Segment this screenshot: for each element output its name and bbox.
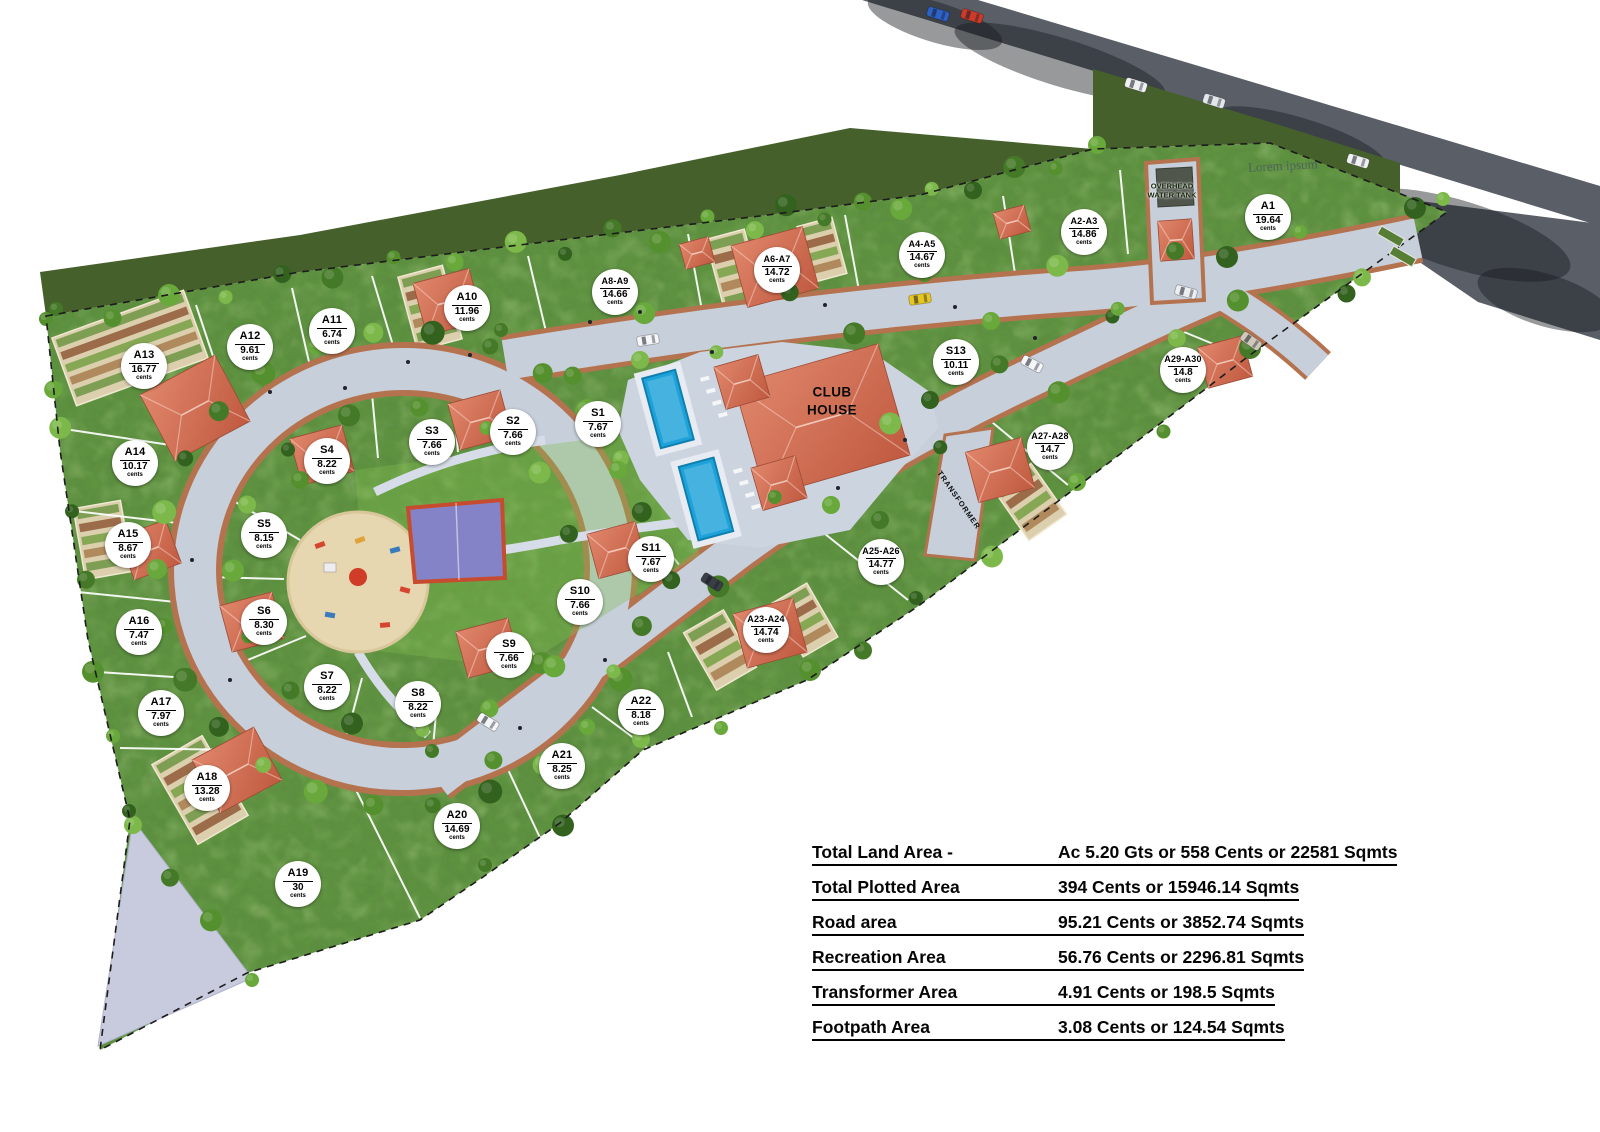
legend-label: Recreation Area — [812, 947, 1058, 968]
plot-id: A19 — [288, 868, 309, 879]
plot-area-value: 8.22 — [317, 686, 336, 696]
plot-area-unit: cents — [501, 664, 517, 671]
plot-marker-a2-a3: A2-A314.86cents — [1061, 209, 1107, 255]
plot-marker-s11: S117.67cents — [628, 536, 674, 582]
plot-area-value: 7.67 — [641, 558, 660, 568]
plot-marker-s9: S97.66cents — [486, 632, 532, 678]
plot-area-unit: cents — [410, 713, 426, 720]
plot-area-value: 10.11 — [944, 361, 968, 371]
plot-area-unit: cents — [873, 570, 889, 577]
plot-marker-s6: S68.30cents — [241, 599, 287, 645]
plot-area-value: 14.7 — [1040, 445, 1059, 455]
overhead-water-tank-label: OVERHEAD WATER TANK — [1148, 182, 1197, 201]
plot-marker-a18: A1813.28cents — [184, 765, 230, 811]
plot-area-value: 6.74 — [322, 330, 341, 340]
plot-area-unit: cents — [590, 433, 606, 440]
plot-marker-a20: A2014.69cents — [434, 803, 480, 849]
plot-marker-a22: A228.18cents — [618, 689, 664, 735]
plot-area-unit: cents — [324, 340, 340, 347]
plot-marker-a19: A1930cents — [275, 861, 321, 907]
legend-value: Ac 5.20 Gts or 558 Cents or 22581 Sqmts — [1058, 842, 1397, 863]
plot-id: S4 — [320, 445, 334, 456]
plot-area-value: 14.8 — [1173, 368, 1192, 378]
area-legend: Total Land Area -Ac 5.20 Gts or 558 Cent… — [812, 842, 1397, 1052]
plot-id: S11 — [641, 543, 661, 554]
plot-id: A16 — [129, 616, 150, 627]
plot-area-unit: cents — [633, 721, 649, 728]
plot-id: S8 — [411, 688, 425, 699]
plot-area-unit: cents — [572, 611, 588, 618]
plot-area-value: 14.67 — [909, 253, 934, 263]
legend-row: Footpath Area3.08 Cents or 124.54 Sqmts — [812, 1017, 1285, 1041]
site-plan-map: CLUB HOUSE OVERHEAD WATER TANK TRANSFORM… — [0, 0, 1600, 1132]
plot-marker-s8: S88.22cents — [395, 681, 441, 727]
plot-marker-a13: A1316.77cents — [121, 343, 167, 389]
plot-id: S2 — [506, 416, 520, 427]
legend-value: 3.08 Cents or 124.54 Sqmts — [1058, 1017, 1285, 1038]
plot-id: A1 — [1261, 201, 1275, 212]
plot-area-value: 30 — [292, 883, 303, 893]
plot-marker-a16: A167.47cents — [116, 609, 162, 655]
plot-area-unit: cents — [199, 797, 215, 804]
plot-id: A8-A9 — [601, 277, 628, 286]
club-house-label: CLUB HOUSE — [807, 383, 857, 418]
plot-id: A6-A7 — [763, 255, 790, 264]
plot-area-unit: cents — [319, 696, 335, 703]
plot-area-value: 7.66 — [503, 431, 522, 441]
legend-row: Total Land Area -Ac 5.20 Gts or 558 Cent… — [812, 842, 1397, 866]
plot-area-value: 11.96 — [455, 307, 479, 317]
plot-area-value: 13.28 — [194, 787, 219, 797]
plot-area-unit: cents — [914, 263, 930, 270]
plot-area-unit: cents — [643, 568, 659, 575]
plot-area-value: 16.77 — [131, 365, 156, 375]
plot-marker-s7: S78.22cents — [304, 664, 350, 710]
plot-marker-a23-a24: A23-A2414.74cents — [743, 607, 789, 653]
legend-row: Transformer Area4.91 Cents or 198.5 Sqmt… — [812, 982, 1275, 1006]
plot-marker-a8-a9: A8-A914.66cents — [592, 269, 638, 315]
plot-area-unit: cents — [290, 893, 306, 900]
plot-marker-s5: S58.15cents — [241, 512, 287, 558]
plot-id: S1 — [591, 408, 605, 419]
plot-marker-a15: A158.67cents — [105, 522, 151, 568]
plot-area-value: 19.64 — [1255, 216, 1280, 226]
plot-marker-a14: A1410.17cents — [112, 440, 158, 486]
legend-value: 4.91 Cents or 198.5 Sqmts — [1058, 982, 1275, 1003]
plot-area-value: 8.18 — [631, 711, 650, 721]
plot-id: A13 — [134, 350, 155, 361]
plot-area-unit: cents — [505, 441, 521, 448]
plot-area-value: 7.66 — [422, 441, 441, 451]
plot-area-unit: cents — [136, 375, 152, 382]
plot-area-unit: cents — [1076, 240, 1092, 247]
plot-area-unit: cents — [1042, 455, 1058, 462]
plot-area-value: 7.66 — [499, 654, 518, 664]
plot-area-value: 8.15 — [254, 534, 273, 544]
plot-area-unit: cents — [758, 638, 774, 645]
plot-id: A18 — [197, 772, 218, 783]
plot-area-value: 8.25 — [552, 765, 571, 775]
legend-value: 394 Cents or 15946.14 Sqmts — [1058, 877, 1299, 898]
plot-id: S3 — [425, 426, 439, 437]
plot-area-unit: cents — [424, 451, 440, 458]
plot-marker-a29-a30: A29-A3014.8cents — [1160, 347, 1206, 393]
plot-id: A21 — [552, 750, 573, 761]
legend-row: Recreation Area56.76 Cents or 2296.81 Sq… — [812, 947, 1304, 971]
plot-area-value: 9.61 — [240, 346, 259, 356]
plot-marker-a12: A129.61cents — [227, 324, 273, 370]
plot-marker-a4-a5: A4-A514.67cents — [899, 232, 945, 278]
legend-row: Road area95.21 Cents or 3852.74 Sqmts — [812, 912, 1304, 936]
plot-id: S9 — [502, 639, 516, 650]
plot-area-value: 8.67 — [118, 544, 137, 554]
plot-id: A17 — [151, 697, 172, 708]
legend-label: Total Plotted Area — [812, 877, 1058, 898]
legend-value: 56.76 Cents or 2296.81 Sqmts — [1058, 947, 1304, 968]
plot-area-unit: cents — [769, 278, 785, 285]
plot-id: A23-A24 — [747, 615, 784, 624]
plot-area-value: 14.66 — [602, 290, 627, 300]
plot-id: S6 — [257, 606, 271, 617]
plot-id: A29-A30 — [1164, 355, 1201, 364]
plot-marker-a10: A1011.96cents — [444, 285, 490, 331]
plot-id: A11 — [322, 315, 342, 326]
plot-marker-s1: S17.67cents — [575, 401, 621, 447]
plot-area-unit: cents — [153, 722, 169, 729]
plot-area-unit: cents — [120, 554, 136, 561]
plot-area-unit: cents — [131, 641, 147, 648]
plot-area-value: 8.30 — [254, 621, 273, 631]
plot-area-value: 7.66 — [570, 601, 589, 611]
plot-area-value: 14.77 — [868, 560, 893, 570]
plot-area-unit: cents — [127, 472, 143, 479]
plot-marker-a17: A177.97cents — [138, 690, 184, 736]
legend-label: Footpath Area — [812, 1017, 1058, 1038]
club-house-label-line2: HOUSE — [807, 401, 857, 419]
legend-label: Road area — [812, 912, 1058, 933]
plot-area-unit: cents — [449, 835, 465, 842]
plot-id: A14 — [125, 447, 146, 458]
plot-id: A20 — [447, 810, 468, 821]
plot-area-unit: cents — [948, 371, 964, 378]
plot-id: S13 — [946, 346, 966, 357]
plot-area-unit: cents — [459, 317, 475, 324]
plot-marker-a21: A218.25cents — [539, 743, 585, 789]
plot-marker-a11: A116.74cents — [309, 308, 355, 354]
plot-marker-s2: S27.66cents — [490, 409, 536, 455]
plot-area-value: 14.86 — [1071, 230, 1096, 240]
plot-area-unit: cents — [607, 300, 623, 307]
plot-area-unit: cents — [256, 544, 272, 551]
plot-id: A27-A28 — [1031, 432, 1068, 441]
legend-label: Transformer Area — [812, 982, 1058, 1003]
legend-row: Total Plotted Area394 Cents or 15946.14 … — [812, 877, 1299, 901]
plot-marker-s13: S1310.11cents — [933, 339, 979, 385]
plot-area-unit: cents — [256, 631, 272, 638]
plot-area-value: 14.69 — [444, 825, 469, 835]
plot-marker-a27-a28: A27-A2814.7cents — [1027, 424, 1073, 470]
plot-marker-s10: S107.66cents — [557, 579, 603, 625]
plot-area-unit: cents — [1175, 378, 1191, 385]
plot-marker-s3: S37.66cents — [409, 419, 455, 465]
legend-value: 95.21 Cents or 3852.74 Sqmts — [1058, 912, 1304, 933]
plot-area-unit: cents — [1260, 226, 1276, 233]
plot-id: A2-A3 — [1070, 217, 1097, 226]
legend-label: Total Land Area - — [812, 842, 1058, 863]
plot-id: A25-A26 — [862, 547, 899, 556]
plot-id: A15 — [118, 529, 139, 540]
plot-area-value: 14.72 — [764, 268, 789, 278]
plot-id: A12 — [240, 331, 261, 342]
plot-marker-s4: S48.22cents — [304, 438, 350, 484]
club-house-label-line1: CLUB — [807, 383, 857, 401]
plot-id: A22 — [631, 696, 652, 707]
plot-area-unit: cents — [554, 775, 570, 782]
plot-id: S7 — [320, 671, 334, 682]
plot-id: S5 — [257, 519, 271, 530]
plot-area-value: 7.47 — [129, 631, 148, 641]
plot-area-value: 8.22 — [408, 703, 427, 713]
plot-id: S10 — [570, 586, 590, 597]
plot-area-value: 7.67 — [588, 423, 607, 433]
plot-area-unit: cents — [242, 356, 258, 363]
plot-id: A10 — [457, 292, 478, 303]
plot-area-value: 7.97 — [151, 712, 170, 722]
plot-area-value: 14.74 — [753, 628, 778, 638]
plot-area-value: 8.22 — [317, 460, 336, 470]
plot-area-unit: cents — [319, 470, 335, 477]
plot-area-value: 10.17 — [122, 462, 147, 472]
plot-marker-a6-a7: A6-A714.72cents — [754, 247, 800, 293]
plot-marker-a25-a26: A25-A2614.77cents — [858, 539, 904, 585]
plot-id: A4-A5 — [908, 240, 935, 249]
plot-marker-a1: A119.64cents — [1245, 194, 1291, 240]
